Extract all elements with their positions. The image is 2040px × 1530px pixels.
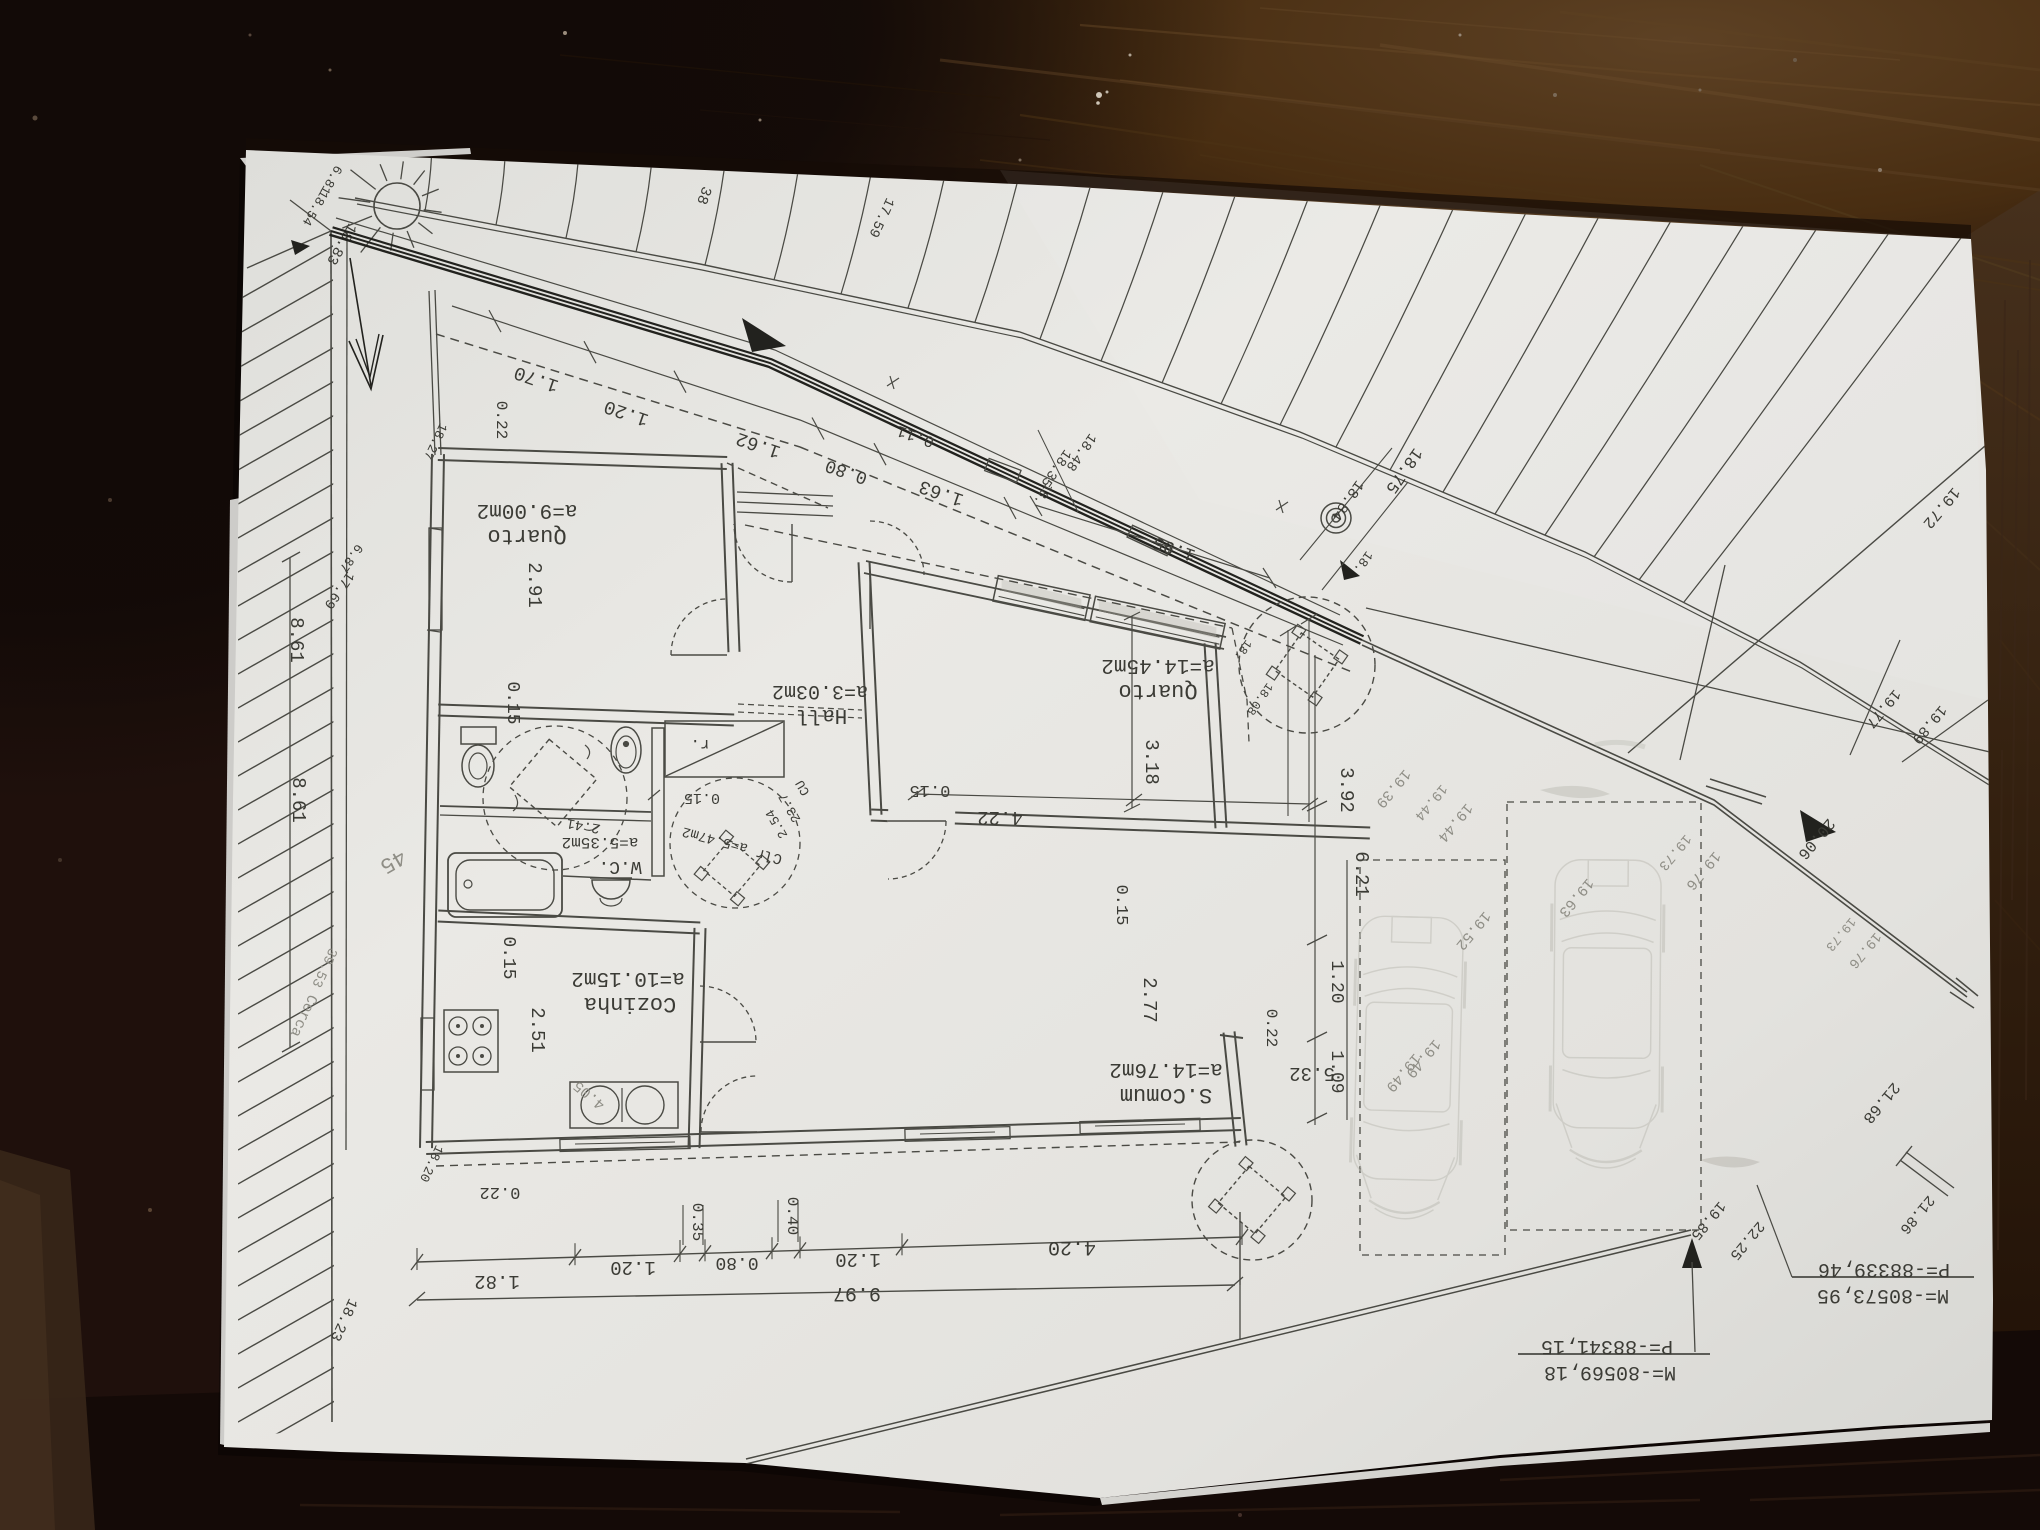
svg-text:W.C.: W.C. (598, 856, 641, 876)
svg-text:4.20: 4.20 (1048, 1235, 1096, 1258)
svg-text:M=-80573,95: M=-80573,95 (1817, 1283, 1949, 1306)
svg-text:9.97: 9.97 (833, 1281, 881, 1304)
svg-text:6.21: 6.21 (1350, 851, 1372, 897)
svg-text:Cozinha: Cozinha (584, 991, 676, 1016)
svg-text:Hall: Hall (797, 703, 847, 726)
svg-text:3.18: 3.18 (1140, 739, 1162, 785)
svg-text:1.20: 1.20 (1326, 960, 1346, 1003)
svg-text:a=5.35m2: a=5.35m2 (562, 833, 639, 851)
svg-text:a=10.15m2: a=10.15m2 (571, 966, 684, 989)
svg-text:0.22: 0.22 (480, 1182, 521, 1201)
svg-text:Quarto: Quarto (487, 523, 566, 548)
svg-text:M=-80569,18: M=-80569,18 (1544, 1360, 1676, 1383)
svg-text:P=-88341,15: P=-88341,15 (1541, 1334, 1673, 1357)
svg-text:S.Comum: S.Comum (1120, 1082, 1212, 1107)
svg-text:2.91: 2.91 (523, 562, 545, 608)
svg-text:a=3.03m2: a=3.03m2 (772, 679, 868, 702)
svg-text:Quarto: Quarto (1118, 678, 1197, 703)
svg-text:a=14.76m2: a=14.76m2 (1109, 1057, 1222, 1080)
svg-text:0.15: 0.15 (910, 780, 951, 799)
svg-text:r.: r. (690, 735, 709, 753)
svg-text:0.15: 0.15 (1111, 885, 1130, 926)
svg-text:3.92: 3.92 (1335, 767, 1357, 813)
svg-text:2.77: 2.77 (1138, 977, 1160, 1023)
svg-text:0.22: 0.22 (492, 401, 510, 439)
svg-text:1.20: 1.20 (610, 1256, 656, 1278)
svg-text:0.15: 0.15 (502, 681, 522, 724)
svg-text:a=14.45m2: a=14.45m2 (1101, 653, 1214, 676)
svg-text:0.80: 0.80 (715, 1252, 758, 1272)
svg-text:4.22: 4.22 (977, 806, 1023, 828)
svg-text:1.82: 1.82 (474, 1270, 520, 1292)
svg-text:a=9.00m2: a=9.00m2 (477, 498, 578, 521)
svg-text:8.61: 8.61 (285, 617, 307, 663)
svg-text:1.09: 1.09 (1326, 1050, 1346, 1093)
svg-text:P=-88339,46: P=-88339,46 (1818, 1257, 1950, 1280)
svg-text:0.15: 0.15 (498, 936, 518, 979)
svg-text:1.20: 1.20 (835, 1248, 881, 1270)
svg-text:2.51: 2.51 (526, 1007, 548, 1053)
svg-text:8.61: 8.61 (287, 777, 309, 823)
svg-text:0.22: 0.22 (1262, 1009, 1280, 1047)
